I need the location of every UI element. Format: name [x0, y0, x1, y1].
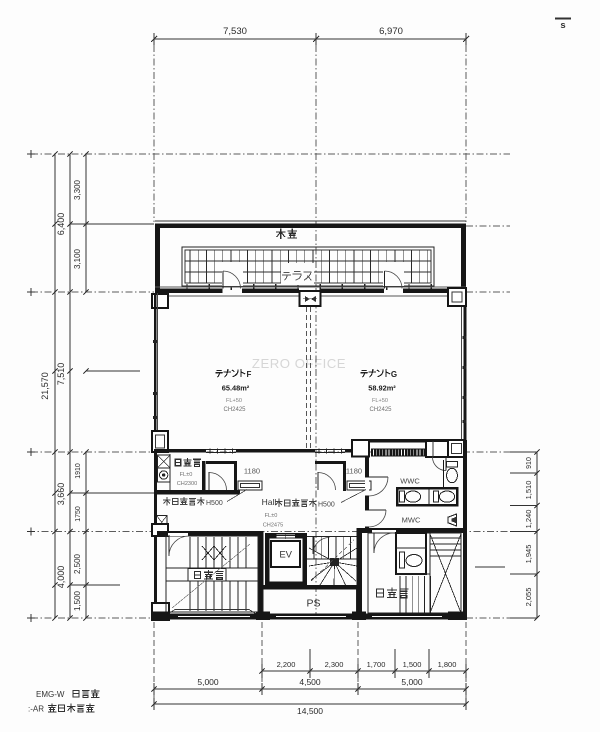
svg-text:H500: H500 [206, 500, 223, 507]
svg-text:7,530: 7,530 [223, 26, 247, 37]
svg-text:EV: EV [279, 550, 292, 561]
svg-text:CH2475: CH2475 [263, 523, 284, 529]
svg-text:5,000: 5,000 [197, 677, 219, 687]
svg-text:Hall: Hall [262, 497, 277, 507]
svg-text:4,000: 4,000 [56, 566, 66, 589]
svg-text:5,000: 5,000 [401, 677, 423, 687]
svg-text:PS: PS [306, 598, 320, 610]
svg-text:1180: 1180 [244, 467, 260, 476]
svg-text:3,100: 3,100 [73, 248, 82, 269]
svg-text:FL+50: FL+50 [372, 398, 388, 404]
svg-text::-AR: :-AR [28, 705, 44, 714]
svg-text:s: s [560, 20, 565, 31]
svg-text:6,970: 6,970 [379, 26, 403, 37]
svg-text:FL+50: FL+50 [226, 398, 242, 404]
svg-text:1,945: 1,945 [524, 545, 533, 564]
svg-text:910: 910 [526, 457, 533, 469]
svg-text:EMG-W: EMG-W [36, 690, 65, 699]
svg-text:H500: H500 [318, 502, 335, 509]
svg-text:65.48m²: 65.48m² [222, 384, 250, 393]
svg-text:1750: 1750 [75, 506, 82, 522]
svg-text:F: F [247, 370, 252, 379]
svg-text:1,800: 1,800 [438, 660, 457, 669]
svg-text:14,500: 14,500 [297, 706, 323, 716]
svg-text:4,500: 4,500 [299, 677, 321, 687]
svg-text:CH2300: CH2300 [177, 481, 198, 487]
svg-text:7,510: 7,510 [56, 363, 66, 386]
svg-text:G: G [391, 370, 397, 379]
svg-text:2,200: 2,200 [277, 660, 296, 669]
svg-text:21,570: 21,570 [40, 372, 50, 400]
svg-text:1,500: 1,500 [73, 590, 82, 611]
svg-text:1,510: 1,510 [524, 481, 533, 500]
svg-text:2,500: 2,500 [73, 553, 82, 574]
svg-text:FL±0: FL±0 [265, 513, 278, 519]
svg-text:MWC: MWC [402, 516, 421, 525]
svg-text:1,700: 1,700 [367, 660, 386, 669]
svg-text:ZERO OFFICE: ZERO OFFICE [252, 356, 346, 371]
svg-text:3,300: 3,300 [73, 179, 82, 200]
svg-text:CH2425: CH2425 [369, 407, 392, 413]
svg-text:1180: 1180 [346, 467, 362, 476]
svg-text:3,660: 3,660 [56, 483, 66, 506]
svg-text:1,500: 1,500 [403, 660, 422, 669]
svg-text:6,400: 6,400 [56, 213, 66, 236]
svg-text:FL±0: FL±0 [180, 472, 193, 478]
svg-text:1910: 1910 [75, 463, 82, 479]
svg-text:1,240: 1,240 [524, 510, 533, 529]
svg-text:58.92m²: 58.92m² [368, 384, 396, 393]
svg-text:2,055: 2,055 [524, 588, 533, 607]
svg-text:WWC: WWC [400, 477, 420, 486]
svg-text:CH2425: CH2425 [223, 407, 246, 413]
svg-text:2,300: 2,300 [325, 660, 344, 669]
